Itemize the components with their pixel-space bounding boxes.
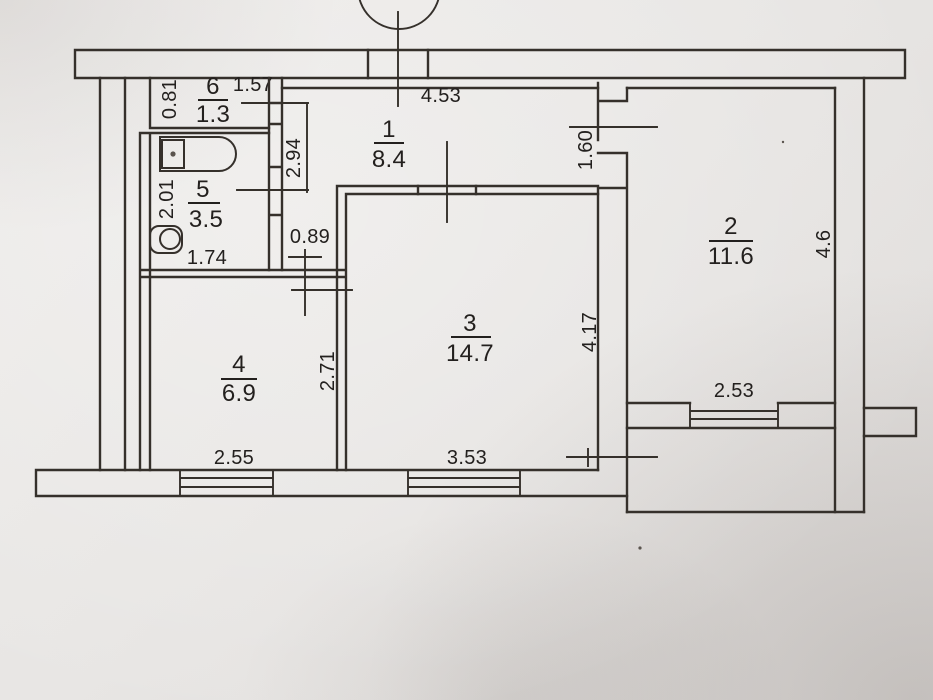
room-4-number: 4	[232, 351, 246, 378]
right-wall-stub	[864, 408, 916, 436]
dim-room4-width: 2.55	[214, 447, 254, 469]
room-2-area: 11.6	[708, 243, 754, 270]
room-3-window-lines	[408, 470, 520, 496]
entrance-door-circle-mark	[358, 0, 440, 29]
hall-room2-wall: 1.60	[567, 83, 657, 512]
room-6-area: 1.3	[196, 101, 230, 128]
right-wall	[835, 78, 864, 512]
room-4-area: 6.9	[222, 380, 256, 407]
bathtub-drain-dot	[170, 151, 175, 156]
room-2-bedroom: 2 11.6 2.53 4.6	[627, 88, 835, 428]
room-3-living: 3 14.7 3.53 4.17	[292, 142, 601, 470]
room-4-window-icon	[180, 470, 273, 496]
dim-room4-depth: 2.71	[317, 351, 339, 391]
room-2-bottom-wall	[627, 403, 835, 428]
room-3-window-icon	[408, 470, 520, 496]
toilet-bowl	[160, 229, 180, 249]
balcony-passage-dim-line	[567, 449, 657, 466]
dim-hall-top-width: 4.53	[421, 85, 461, 107]
left-wall	[100, 78, 125, 470]
dim-room4-door-width: 0.89	[290, 226, 330, 248]
floor-plan-drawing: 1 8.4 4.53 6 1.3 0.81 1.57 5 3.5 2.01 1.…	[0, 0, 933, 700]
room-2-number: 2	[724, 213, 738, 240]
dim-room3-width: 3.53	[447, 447, 487, 469]
room4-door-axis-line	[289, 250, 321, 315]
dim-room6-depth: 0.81	[159, 79, 181, 119]
toilet-icon	[150, 226, 182, 253]
hall-room2-wall-lines	[598, 83, 627, 512]
room-6-closet: 6 1.3 0.81 1.57	[150, 73, 308, 128]
room-6-number: 6	[206, 73, 220, 100]
room-4-window-lines	[180, 470, 273, 496]
paper-speck	[638, 546, 641, 549]
dim-hall-side: 2.94	[283, 138, 305, 178]
room-4-kitchen: 4 6.9 2.55 2.71	[214, 351, 339, 469]
room-1-number: 1	[382, 116, 396, 143]
room-1-area: 8.4	[372, 146, 406, 173]
room-2-window-icon	[690, 403, 778, 428]
dim-room2-depth: 4.6	[813, 230, 835, 259]
floor-plan-photo: 1 8.4 4.53 6 1.3 0.81 1.57 5 3.5 2.01 1.…	[0, 0, 933, 700]
dim-bath-width: 1.74	[187, 247, 227, 269]
room-5-bathroom: 5 3.5 2.01 1.74	[140, 133, 345, 470]
dim-bath-depth: 2.01	[156, 179, 178, 219]
dim-room2-door-width: 1.60	[575, 130, 597, 170]
room-5-area: 3.5	[189, 206, 223, 233]
dim-room2-width: 2.53	[714, 380, 754, 402]
room-3-area: 14.7	[446, 340, 494, 367]
dim-room6-width: 1.57	[233, 74, 273, 96]
top-wall-band	[75, 50, 905, 78]
room-5-number: 5	[196, 176, 210, 203]
corridor-wall-lines	[269, 78, 282, 270]
room-3-number: 3	[463, 310, 477, 337]
paper-speck	[782, 141, 784, 143]
corridor-wall: 2.94 0.89	[269, 78, 330, 315]
bottom-wall	[36, 470, 627, 496]
bathtub-icon	[160, 137, 236, 171]
room-1-hallway: 1 8.4 4.53	[282, 85, 598, 173]
room-2-window-lines	[690, 403, 778, 428]
